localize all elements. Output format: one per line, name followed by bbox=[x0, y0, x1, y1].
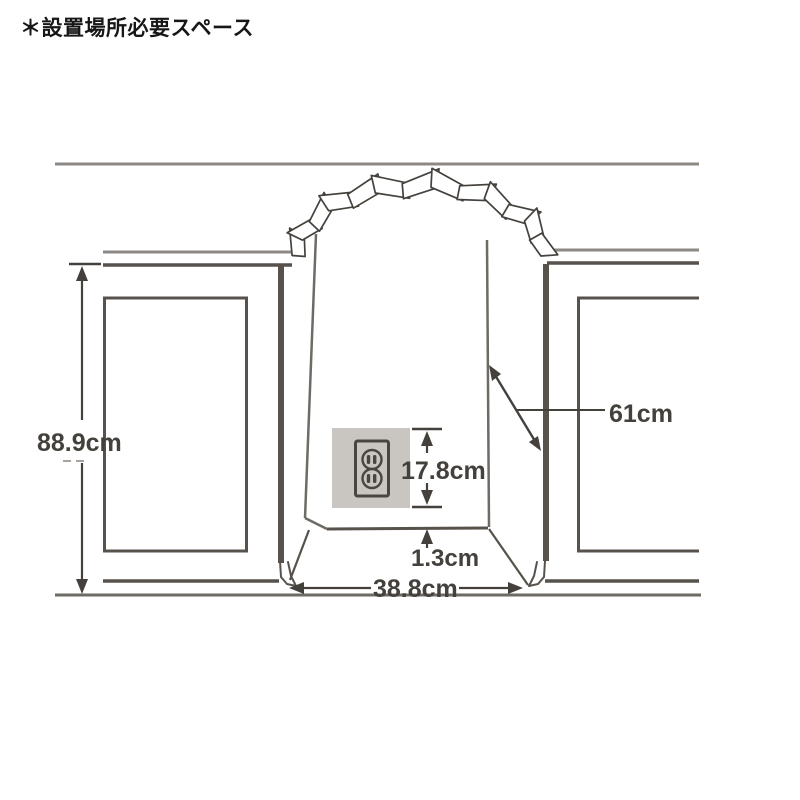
alcove bbox=[290, 234, 528, 585]
alcove-floor-back-edge bbox=[327, 528, 488, 529]
alcove-right-wall bbox=[487, 240, 489, 527]
arrow-up-icon bbox=[421, 529, 433, 544]
outlet-slot bbox=[367, 455, 370, 464]
dimension-alcove-width: 38.8cm bbox=[289, 575, 523, 603]
arrow-up-left-icon bbox=[489, 365, 501, 381]
duplex-outlet-icon bbox=[332, 428, 410, 508]
arrow-up-icon bbox=[76, 266, 88, 281]
installation-space-diagram: 88.9cm 17.8cm 1.3cm 38.8cm bbox=[0, 0, 800, 800]
dimension-cabinet-height: 88.9cm bbox=[37, 264, 122, 594]
left-cabinet bbox=[103, 252, 296, 586]
cabinet-height-label: 88.9cm bbox=[37, 429, 122, 457]
arrow-down-icon bbox=[76, 579, 88, 594]
torn-edge-arch bbox=[287, 168, 558, 256]
dimension-outlet-bottom-gap: 1.3cm bbox=[411, 529, 479, 572]
arrow-up-icon bbox=[421, 431, 433, 446]
depth-label: 61cm bbox=[609, 400, 673, 428]
dimension-depth: 61cm bbox=[489, 365, 673, 451]
right-cabinet-foot-hook-inner bbox=[529, 562, 537, 586]
alcove-floor-left-perspective-line bbox=[290, 530, 309, 580]
outlet-slot bbox=[373, 474, 376, 483]
outlet-slot bbox=[373, 455, 376, 464]
alcove-floor-right-perspective-line bbox=[489, 529, 528, 585]
outlet-plate-height-label: 17.8cm bbox=[401, 457, 486, 485]
outlet-socket-top bbox=[363, 450, 382, 469]
arrow-right-icon bbox=[508, 582, 523, 594]
arrow-down-icon bbox=[421, 490, 433, 505]
alcove-floor-corner bbox=[305, 518, 327, 529]
left-cabinet-door bbox=[105, 298, 247, 551]
arrow-down-right-icon bbox=[529, 436, 541, 451]
alcove-width-label: 38.8cm bbox=[373, 575, 458, 603]
room-outline bbox=[55, 164, 701, 595]
alcove-left-wall bbox=[305, 234, 316, 518]
outlet-slot bbox=[367, 474, 370, 483]
outlet-socket-bottom bbox=[363, 469, 382, 488]
installation-space-figure: ＊設置場所必要スペース bbox=[0, 0, 800, 800]
outlet-bottom-gap-label: 1.3cm bbox=[411, 545, 479, 572]
dimension-diagonal-line bbox=[492, 370, 538, 446]
arrow-left-icon bbox=[289, 582, 304, 594]
dimension-outlet-plate-height: 17.8cm bbox=[401, 429, 486, 507]
